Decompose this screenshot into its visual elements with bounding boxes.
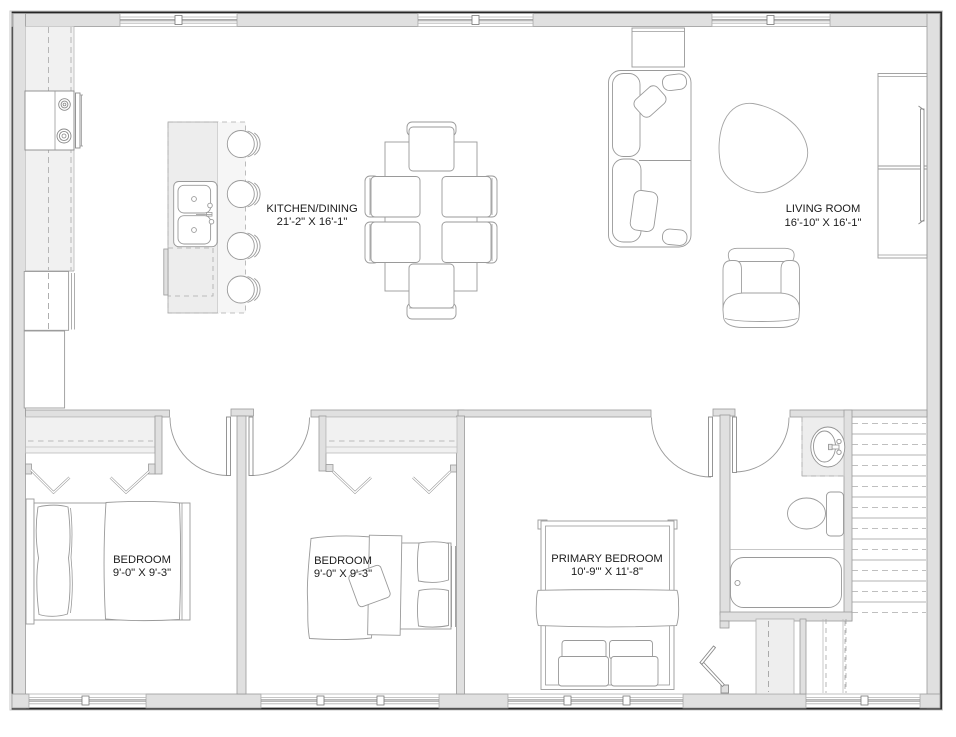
svg-text:PRIMARY BEDROOM: PRIMARY BEDROOM [551,553,662,565]
svg-text:LIVING ROOM: LIVING ROOM [786,203,861,215]
svg-text:KITCHEN/DINING: KITCHEN/DINING [266,203,357,215]
svg-text:BEDROOM: BEDROOM [314,555,372,567]
svg-text:9'-0" X 9'-3": 9'-0" X 9'-3" [113,567,171,579]
svg-text:21'-2" X 16'-1": 21'-2" X 16'-1" [277,216,348,228]
svg-text:9'-0" X 9'-3": 9'-0" X 9'-3" [314,568,372,580]
svg-text:BEDROOM: BEDROOM [113,554,171,566]
svg-text:10'-9"' X 11'-8": 10'-9"' X 11'-8" [571,566,643,578]
svg-text:16'-10" X 16'-1": 16'-10" X 16'-1" [785,217,862,229]
